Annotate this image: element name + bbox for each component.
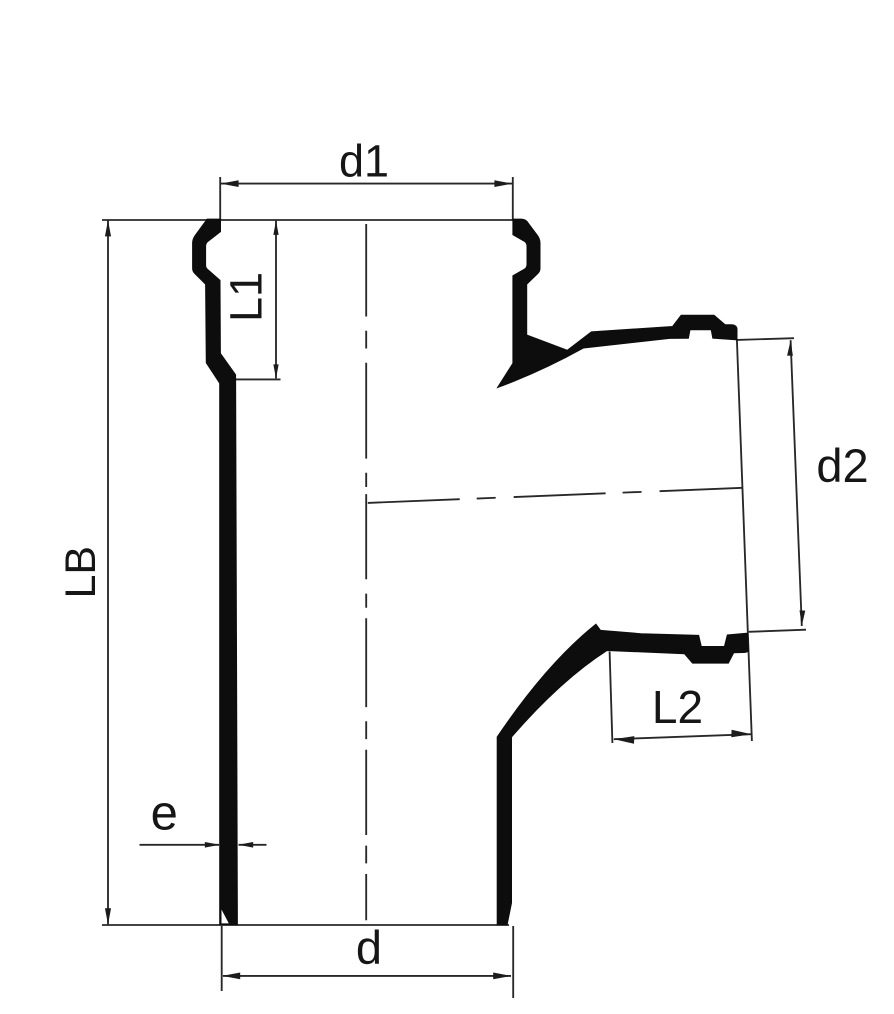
svg-text:d1: d1	[339, 136, 389, 187]
svg-text:d2: d2	[816, 439, 868, 492]
svg-text:d: d	[356, 921, 382, 974]
svg-text:L2: L2	[652, 681, 703, 733]
svg-text:LB: LB	[57, 546, 105, 599]
svg-text:L1: L1	[221, 272, 272, 322]
svg-text:e: e	[151, 786, 178, 840]
